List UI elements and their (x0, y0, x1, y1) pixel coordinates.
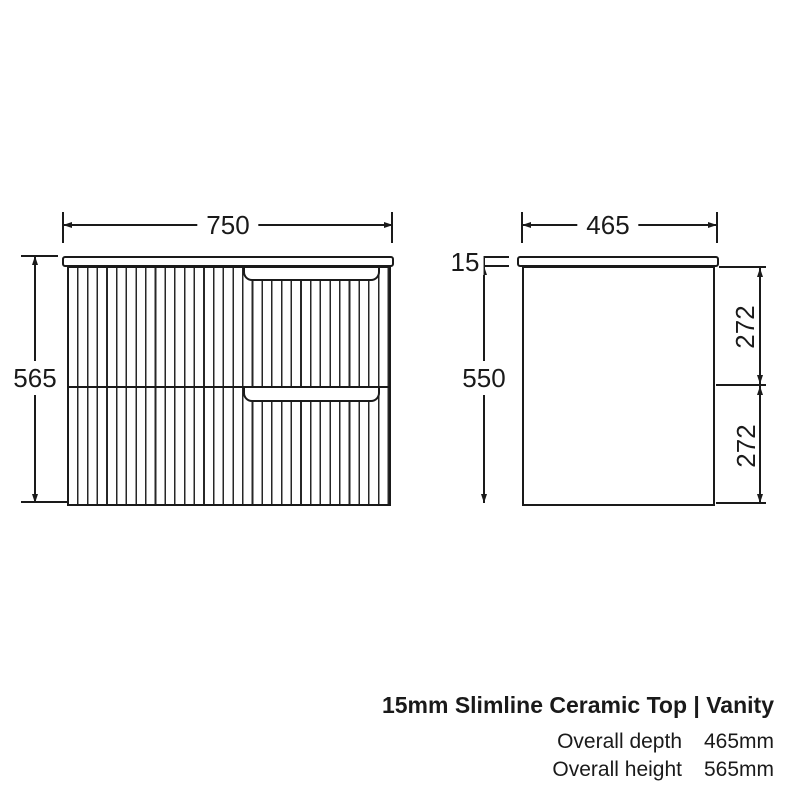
spec-height-value: 565mm (682, 757, 774, 782)
arrow-down-icon (757, 494, 763, 503)
spec-depth-value: 465mm (682, 729, 774, 754)
front-countertop (62, 256, 394, 267)
arrow-up-icon (757, 386, 763, 395)
side-depth-label: 465 (577, 212, 638, 238)
technical-drawing-sheet: 750 565 465 15 550 272 272 15m (0, 0, 800, 800)
side-countertop (517, 256, 719, 267)
side-cabinet-body (522, 266, 715, 506)
side-top-thickness-tick-upper (481, 256, 509, 258)
arrow-right-icon (384, 222, 393, 228)
arrow-up-icon (757, 268, 763, 277)
product-title: 15mm Slimline Ceramic Top | Vanity (300, 692, 774, 720)
front-cabinet-body (67, 266, 391, 506)
arrow-down-icon (481, 494, 487, 503)
front-height-label: 565 (11, 361, 58, 395)
side-height-label: 550 (460, 361, 507, 395)
arrow-down-icon (757, 375, 763, 384)
spec-depth-label: Overall depth (557, 729, 682, 754)
side-drawer2-height-label: 272 (733, 424, 759, 467)
side-top-thickness-label: 15 (447, 249, 484, 275)
front-drawer1-handle-recess (243, 268, 380, 281)
spec-row-depth: Overall depth 465mm (400, 729, 774, 754)
arrow-down-icon (32, 494, 38, 503)
side-drawer1-height-label: 272 (732, 305, 758, 348)
front-height-extension-top (21, 255, 58, 257)
front-width-label: 750 (197, 212, 258, 238)
arrow-up-icon (32, 256, 38, 265)
arrow-left-icon (522, 222, 531, 228)
arrow-right-icon (708, 222, 717, 228)
arrow-left-icon (63, 222, 72, 228)
spec-row-height: Overall height 565mm (400, 757, 774, 782)
front-drawer2-handle-recess (243, 388, 380, 402)
spec-height-label: Overall height (552, 757, 682, 782)
